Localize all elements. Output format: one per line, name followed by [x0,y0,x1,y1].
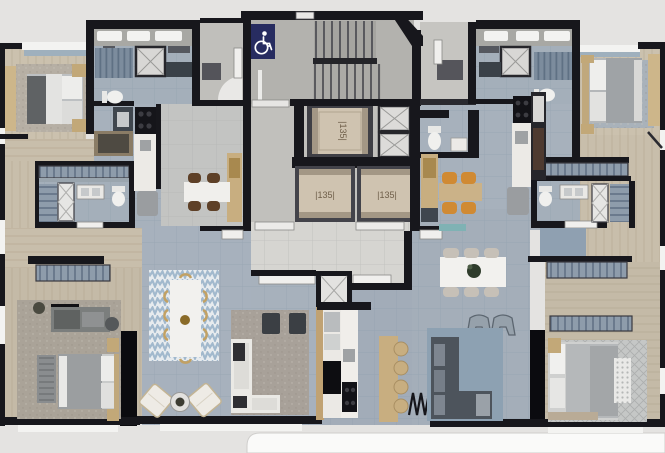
svg-text:|135|: |135| [338,121,348,141]
svg-text:|135|: |135| [377,190,397,200]
svg-text:|135|: |135| [315,190,335,200]
